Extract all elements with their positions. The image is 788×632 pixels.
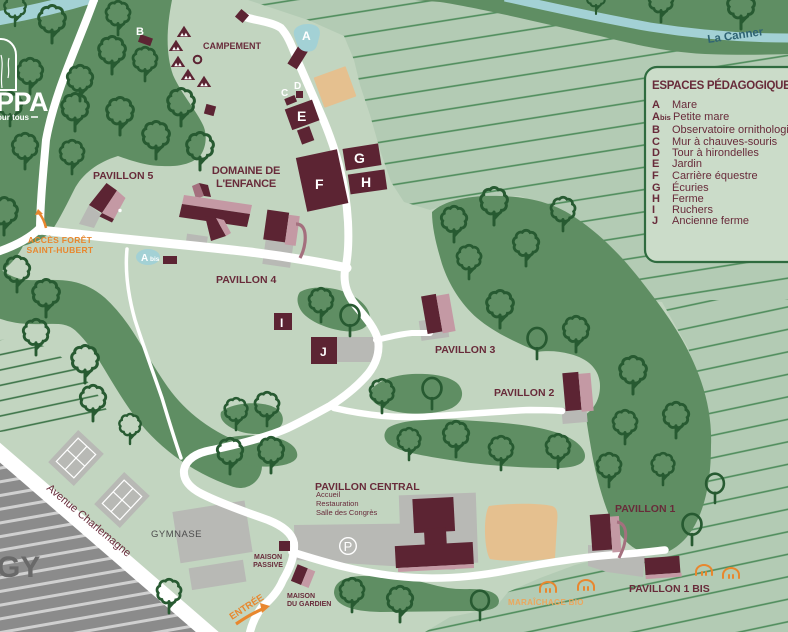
svg-text:PAVILLON 1: PAVILLON 1 (615, 503, 675, 515)
svg-text:E: E (297, 108, 306, 124)
svg-text:G: G (354, 150, 365, 166)
svg-text:PASSIVE: PASSIVE (253, 562, 283, 569)
svg-text:H: H (361, 174, 371, 190)
svg-text:ESPACES PÉDAGOGIQUES: ESPACES PÉDAGOGIQUES (652, 79, 788, 92)
svg-text:PAVILLON 5: PAVILLON 5 (93, 170, 153, 182)
svg-text:A: A (141, 253, 148, 264)
svg-text:Jardin: Jardin (672, 158, 702, 170)
svg-text:B: B (136, 26, 144, 38)
svg-text:Restauration: Restauration (316, 499, 359, 508)
svg-text:Salle des Congrès: Salle des Congrès (316, 508, 378, 517)
svg-text:Petite mare: Petite mare (673, 111, 729, 123)
svg-text:PAVILLON 1 BIS: PAVILLON 1 BIS (629, 583, 710, 595)
svg-text:MAISON: MAISON (287, 593, 315, 600)
svg-text:Mare: Mare (672, 99, 697, 111)
svg-text:GYMNASE: GYMNASE (151, 529, 202, 540)
svg-text:DOMAINE DE: DOMAINE DE (212, 165, 280, 177)
svg-text:A: A (652, 99, 660, 111)
svg-text:MAISON: MAISON (254, 554, 282, 561)
svg-text:PAVILLON 4: PAVILLON 4 (216, 274, 276, 286)
svg-text:Ancienne ferme: Ancienne ferme (672, 215, 749, 227)
svg-text:F: F (315, 176, 324, 192)
svg-text:B: B (652, 124, 660, 136)
svg-text:MARAÎCHAGE BIO: MARAÎCHAGE BIO (508, 598, 584, 607)
svg-text:PAVILLON 2: PAVILLON 2 (494, 387, 554, 399)
svg-text:PAVILLON 3: PAVILLON 3 (435, 344, 495, 356)
svg-text:DU GARDIEN: DU GARDIEN (287, 601, 331, 608)
svg-text:J: J (320, 345, 327, 359)
svg-text:CAMPEMENT: CAMPEMENT (203, 41, 262, 51)
svg-text:bis: bis (660, 113, 671, 122)
svg-text:P: P (344, 539, 353, 554)
svg-text:E: E (652, 158, 659, 170)
svg-text:C: C (281, 88, 288, 99)
svg-text:I: I (280, 316, 283, 330)
svg-text:our tous: our tous (0, 113, 30, 122)
svg-text:J: J (652, 215, 658, 227)
svg-text:GY: GY (0, 551, 40, 584)
svg-text:bis: bis (150, 256, 160, 263)
svg-text:ACCÈS FORÊT: ACCÈS FORÊT (28, 234, 93, 245)
svg-text:Carrière équestre: Carrière équestre (672, 170, 758, 182)
svg-text:SAINT-HUBERT: SAINT-HUBERT (27, 245, 94, 255)
svg-text:A: A (302, 29, 311, 43)
svg-text:L'ENFANCE: L'ENFANCE (216, 178, 276, 190)
svg-text:D: D (294, 81, 301, 92)
svg-text:Accueil: Accueil (316, 490, 341, 499)
svg-text:Observatoire ornithologique: Observatoire ornithologique (672, 124, 788, 136)
svg-text:A: A (652, 111, 660, 123)
svg-text:F: F (652, 170, 659, 182)
